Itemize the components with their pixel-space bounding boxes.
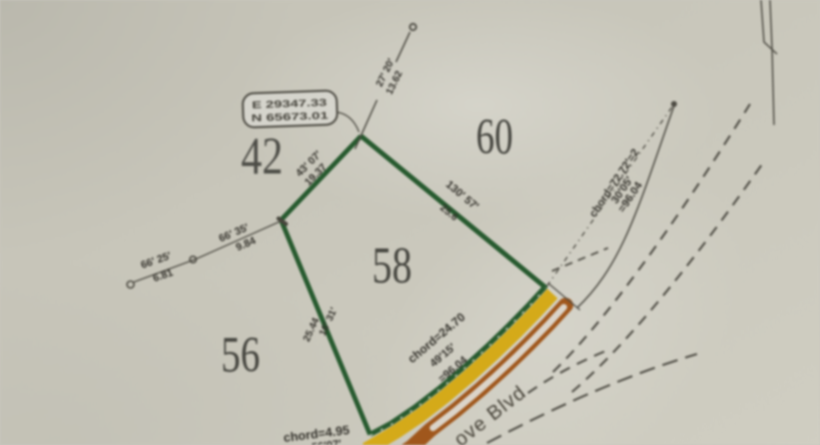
svg-text:60: 60 [476, 110, 513, 166]
svg-text:42: 42 [241, 128, 283, 186]
svg-text:56: 56 [221, 328, 260, 384]
svg-text:58: 58 [372, 238, 412, 295]
